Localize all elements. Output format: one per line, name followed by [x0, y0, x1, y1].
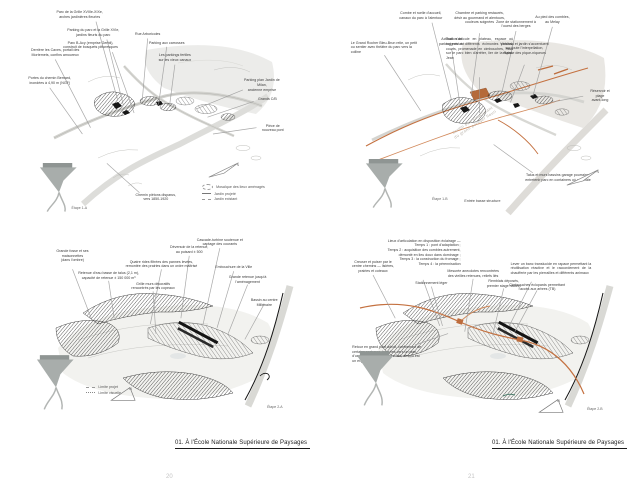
stage-label: Étape 1-B [432, 197, 448, 201]
legend-label: Mosaïque des lieux aménagés [216, 185, 265, 189]
footer-right-page: 01. À l'École Nationale Supérieure de Pa… [492, 440, 627, 449]
plan-panel-bottom-right: Lieux d'articulation en disposition écla… [348, 228, 626, 420]
north-arrow-icon: N [537, 397, 567, 414]
legend-label: Jardin existant [214, 197, 237, 201]
plan-panel-top-right: Combe et ruelle d'accueil, canaux du par… [348, 8, 628, 218]
north-arrow-icon: N [208, 161, 240, 179]
legend-swatch-dashed [202, 199, 211, 200]
legend-swatch-blob [202, 184, 213, 190]
plan-panel-bottom-left: Grande fosse et ses maisonnettes (dans l… [28, 228, 306, 420]
svg-text:N: N [129, 388, 132, 392]
legend-label: Jardin projeté [214, 192, 236, 196]
plan-panel-top-left: Parc de la Grille XVIIIe-XIXe, arches ja… [28, 8, 300, 218]
key-map-icon [34, 355, 78, 411]
key-map-icon [354, 351, 398, 407]
document-spread: Parc de la Grille XVIIIe-XIXe, arches ja… [0, 0, 640, 480]
drawing-caption: Entrée basse structure [464, 199, 500, 203]
north-arrow-icon: N [566, 168, 600, 187]
legend-item: Jardin projeté [202, 192, 265, 196]
legend-item: Jardin existant [202, 197, 265, 201]
legend-item: Mosaïque des lieux aménagés [202, 184, 265, 190]
svg-text:N: N [557, 399, 560, 403]
page-number-right: 21 [468, 474, 475, 480]
legend-swatch-solid [202, 193, 211, 194]
stage-label: Étape 1-A [72, 206, 88, 210]
legend-swatch-dashed2 [86, 392, 95, 393]
legend-swatch-dashed [86, 387, 95, 388]
legend: Mosaïque des lieux aménagésJardin projet… [202, 184, 265, 203]
footer-left-page: 01. À l'École Nationale Supérieure de Pa… [175, 440, 310, 449]
north-arrow-icon: N [109, 385, 139, 402]
stage-label: Étape 2-A [267, 405, 283, 409]
svg-text:N: N [236, 163, 239, 167]
page-number-left: 20 [166, 474, 173, 480]
key-map-icon [362, 159, 408, 209]
svg-text:N: N [597, 170, 600, 174]
stage-label: Étape 2-B [587, 407, 603, 411]
